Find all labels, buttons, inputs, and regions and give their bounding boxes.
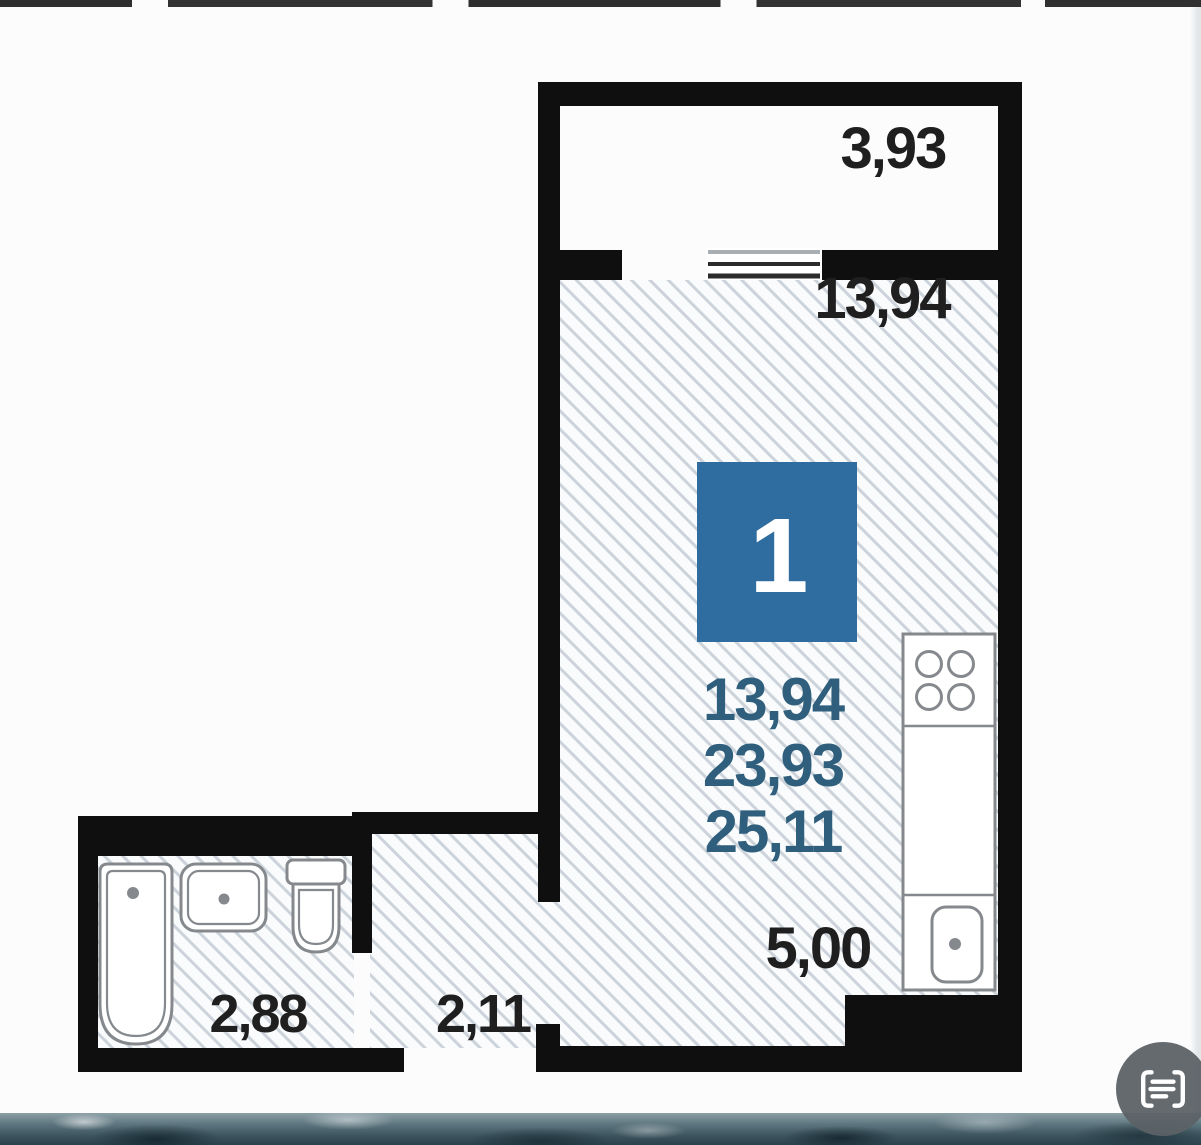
wall-bathroom-right <box>352 816 372 953</box>
toilet <box>287 860 345 952</box>
wall-balcony-divider-left <box>538 250 622 280</box>
bathroom-sink <box>181 864 266 931</box>
floorplan-photo: 1 3,93 13,94 13,94 23,93 25,11 5,00 2,88… <box>0 0 1201 1145</box>
bathroom-sink-drain <box>219 894 230 905</box>
balcony-area-label: 3,93 <box>841 116 947 181</box>
bathroom-area-label: 2,88 <box>209 984 307 1044</box>
wall-bathroom-top <box>78 816 372 856</box>
kitchen-sink <box>932 907 982 982</box>
kitchen-sink-drain <box>949 938 961 950</box>
scan-bracket-right <box>1174 1072 1182 1105</box>
wall-bathroom-left <box>78 816 98 1072</box>
kitchen-fixtures <box>903 634 995 990</box>
scan-text-icon <box>1138 1064 1188 1114</box>
bathtub-drain <box>127 887 139 899</box>
wall-bottom-main <box>536 1046 846 1072</box>
unit-badge-number: 1 <box>750 497 809 615</box>
living-area-value: 13,94 <box>703 666 846 733</box>
toilet-bowl-inner <box>299 890 333 944</box>
wall-right <box>998 82 1022 1072</box>
hallway-area-label: 2,11 <box>436 984 531 1044</box>
scan-button[interactable] <box>1116 1042 1201 1136</box>
toilet-tank <box>287 860 345 884</box>
wall-left <box>538 82 560 902</box>
total-area-value: 23,93 <box>703 732 844 799</box>
wall-hallway-top <box>352 812 552 834</box>
floor-plan: 1 3,93 13,94 13,94 23,93 25,11 5,00 2,88… <box>0 0 1201 1145</box>
sea-photo-strip <box>0 1113 1201 1145</box>
wall-corner-block <box>845 995 1022 1072</box>
kitchen-area-label: 5,00 <box>766 916 871 981</box>
unit-number-badge: 1 <box>697 462 857 642</box>
room-area-label: 13,94 <box>814 266 951 331</box>
wall-bottom-left <box>78 1048 404 1072</box>
balcony-window <box>706 248 822 280</box>
wall-top <box>538 82 1022 106</box>
total-with-balcony-value: 25,11 <box>705 798 842 865</box>
bathtub <box>100 864 172 1044</box>
